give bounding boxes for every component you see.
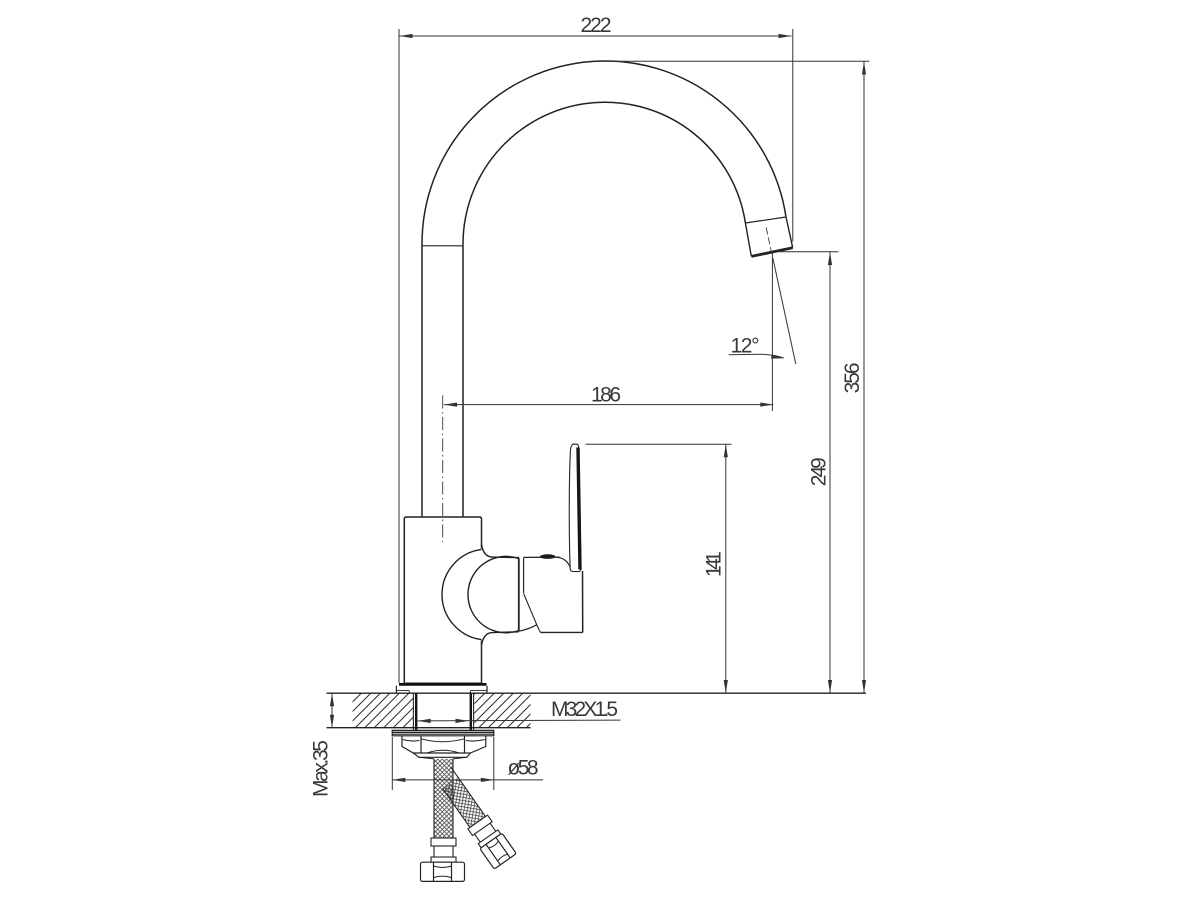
svg-text:ø58: ø58 (508, 757, 539, 780)
svg-text:222: 222 (581, 14, 612, 37)
svg-text:12°: 12° (731, 335, 760, 358)
svg-text:Max.35: Max.35 (310, 740, 333, 797)
svg-text:186: 186 (591, 384, 621, 407)
svg-text:249: 249 (808, 457, 831, 486)
svg-text:M32X1.5: M32X1.5 (551, 698, 618, 721)
svg-text:141: 141 (703, 551, 726, 577)
svg-text:356: 356 (841, 362, 864, 393)
